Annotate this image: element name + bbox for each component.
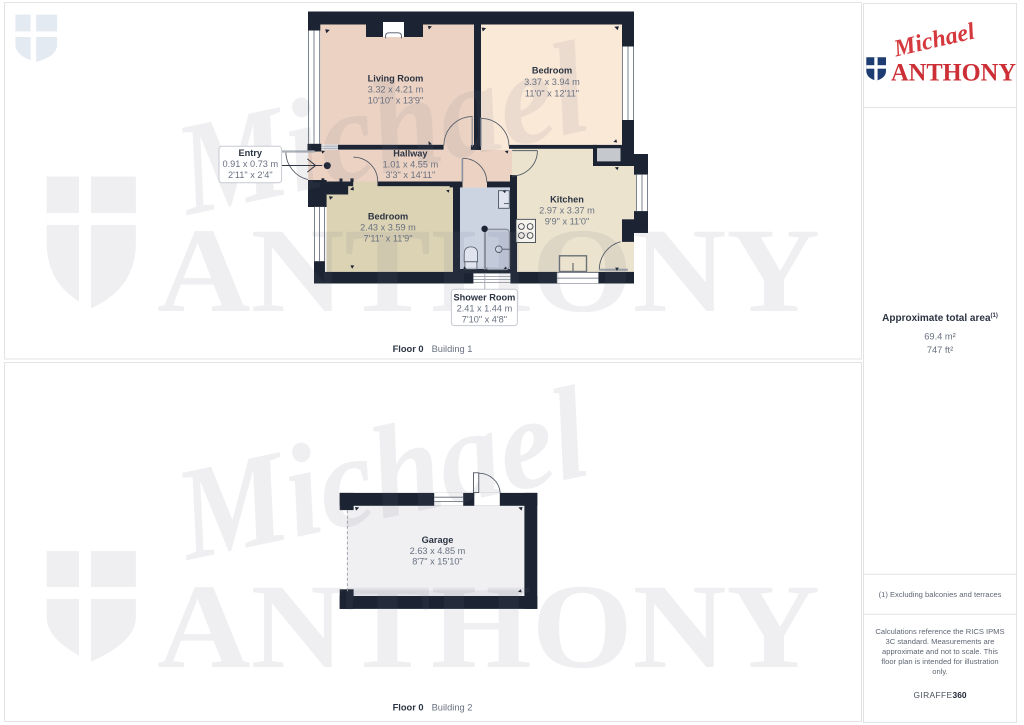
svg-text:2.43 x 3.59 m: 2.43 x 3.59 m <box>360 223 416 233</box>
svg-text:2'11" x 2'4": 2'11" x 2'4" <box>228 170 273 180</box>
svg-text:3'3" x 14'11": 3'3" x 14'11" <box>386 170 436 180</box>
svg-text:ANTHONY: ANTHONY <box>891 58 1016 87</box>
svg-text:2.97 x 3.37 m: 2.97 x 3.37 m <box>539 206 595 216</box>
svg-text:9'9" x 11'0": 9'9" x 11'0" <box>545 217 590 227</box>
svg-text:GIRAFFE360: GIRAFFE360 <box>913 690 966 700</box>
svg-text:Garage: Garage <box>422 535 454 545</box>
svg-text:747 ft²: 747 ft² <box>927 345 953 355</box>
svg-text:only.: only. <box>932 667 947 676</box>
svg-text:7'11" x 11'9": 7'11" x 11'9" <box>363 234 412 244</box>
svg-text:Kitchen: Kitchen <box>550 195 584 205</box>
svg-text:Entry: Entry <box>239 148 263 158</box>
svg-text:approximate and not to scale.: approximate and not to scale. This <box>882 647 998 656</box>
svg-text:Approximate total area(1): Approximate total area(1) <box>882 313 998 324</box>
svg-text:0.91 x 0.73 m: 0.91 x 0.73 m <box>222 159 278 169</box>
svg-text:8'7" x 15'10": 8'7" x 15'10" <box>412 557 462 567</box>
svg-text:11'0" x 12'11": 11'0" x 12'11" <box>525 88 579 98</box>
svg-text:(1) Excluding balconies and te: (1) Excluding balconies and terraces <box>879 590 1002 599</box>
svg-text:3.32 x 4.21 m: 3.32 x 4.21 m <box>368 85 424 95</box>
svg-text:Floor 0Building 1: Floor 0Building 1 <box>393 344 473 354</box>
svg-text:69.4 m²: 69.4 m² <box>924 331 956 341</box>
svg-text:Bedroom: Bedroom <box>368 211 408 221</box>
svg-text:7'10" x 4'8": 7'10" x 4'8" <box>462 315 507 325</box>
svg-text:floor plan is intended for ill: floor plan is intended for illustration <box>881 657 998 666</box>
svg-text:Hallway: Hallway <box>393 148 428 158</box>
svg-text:10'10" x 13'9": 10'10" x 13'9" <box>368 96 424 106</box>
svg-text:3C standard. Measurements are: 3C standard. Measurements are <box>886 637 995 646</box>
svg-text:Living Room: Living Room <box>368 74 424 84</box>
svg-text:Floor 0Building 2: Floor 0Building 2 <box>393 703 473 713</box>
svg-text:2.41 x 1.44 m: 2.41 x 1.44 m <box>457 304 513 314</box>
svg-text:ANTHONY: ANTHONY <box>157 560 820 694</box>
svg-text:2.63 x 4.85 m: 2.63 x 4.85 m <box>410 546 466 556</box>
svg-text:1.01 x 4.55 m: 1.01 x 4.55 m <box>383 159 439 169</box>
svg-text:3.37 x 3.94 m: 3.37 x 3.94 m <box>524 77 580 87</box>
svg-text:Calculations reference the RIC: Calculations reference the RICS IPMS <box>875 627 1004 636</box>
svg-text:Bedroom: Bedroom <box>532 66 572 76</box>
svg-text:Shower Room: Shower Room <box>454 293 516 303</box>
